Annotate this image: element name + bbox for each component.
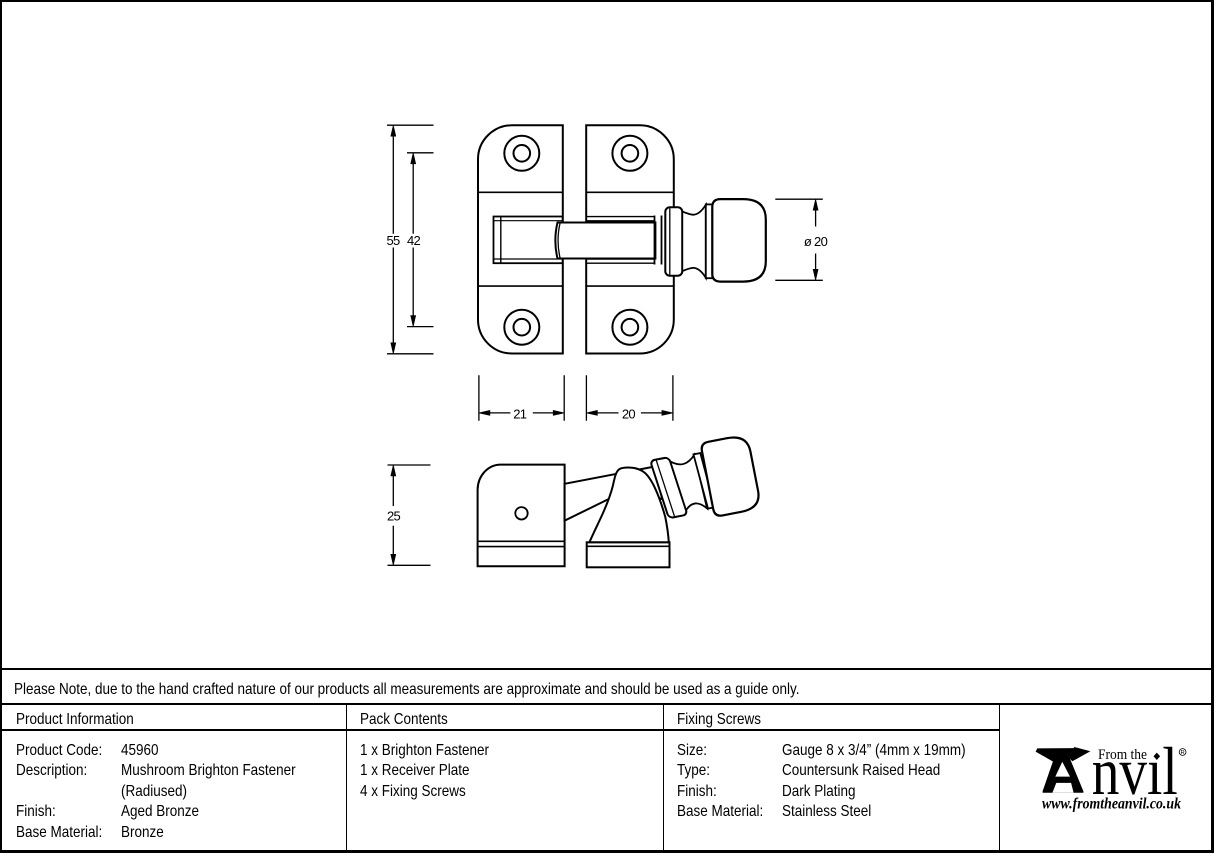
svg-text:www.fromtheanvil.co.uk: www.fromtheanvil.co.uk xyxy=(1042,796,1181,813)
svg-text:R: R xyxy=(1181,750,1185,756)
svg-text:From the: From the xyxy=(1098,747,1147,763)
